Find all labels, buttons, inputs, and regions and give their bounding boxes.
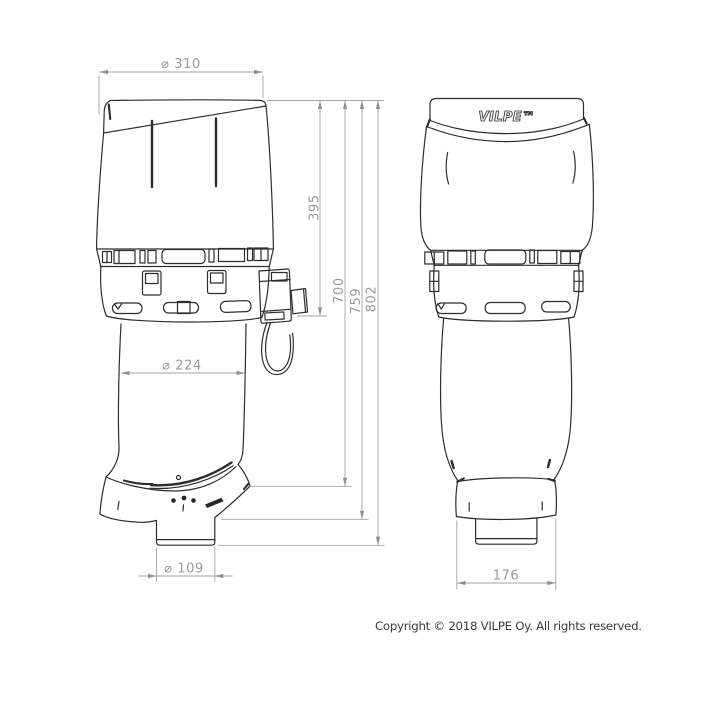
technical-drawing-canvas: VILPE™ (0, 0, 703, 703)
dim-label-height-802: 802 (365, 286, 380, 313)
vilpe-logo: VILPE™ (479, 110, 536, 125)
roof-flashing (100, 463, 250, 523)
pipe-front (441, 319, 572, 481)
right-view-drawing (421, 99, 594, 545)
copyright-text: Copyright © 2018 VILPE Oy. All rights re… (375, 619, 695, 633)
power-cable (262, 323, 294, 375)
dim-label-collar-width: 176 (493, 569, 520, 584)
dim-label-pipe-diameter: ⌀ 224 (162, 359, 202, 374)
junction-box (259, 269, 308, 323)
hood-side (97, 100, 274, 249)
dimension-arrowheads (99, 70, 556, 585)
vent-band-side (97, 248, 274, 267)
pipe-side (106, 324, 246, 477)
housing-front (430, 265, 583, 321)
outlet-stub-side (157, 518, 215, 546)
collar-front (456, 478, 557, 520)
dim-label-outlet-diameter: ⌀ 109 (164, 562, 204, 577)
dim-label-height-759: 759 (349, 288, 364, 315)
dim-label-height-395: 395 (308, 194, 323, 221)
left-view-drawing (97, 100, 308, 545)
vent-fan-drawing: VILPE™ (0, 0, 703, 703)
dimension-lines (99, 72, 556, 590)
dim-label-hood-diameter: ⌀ 310 (161, 57, 201, 72)
vent-band-front (425, 250, 582, 265)
outlet-stub-front (476, 518, 537, 544)
dim-label-height-700: 700 (332, 277, 347, 304)
hood-front (421, 124, 594, 250)
housing-side (101, 267, 270, 323)
